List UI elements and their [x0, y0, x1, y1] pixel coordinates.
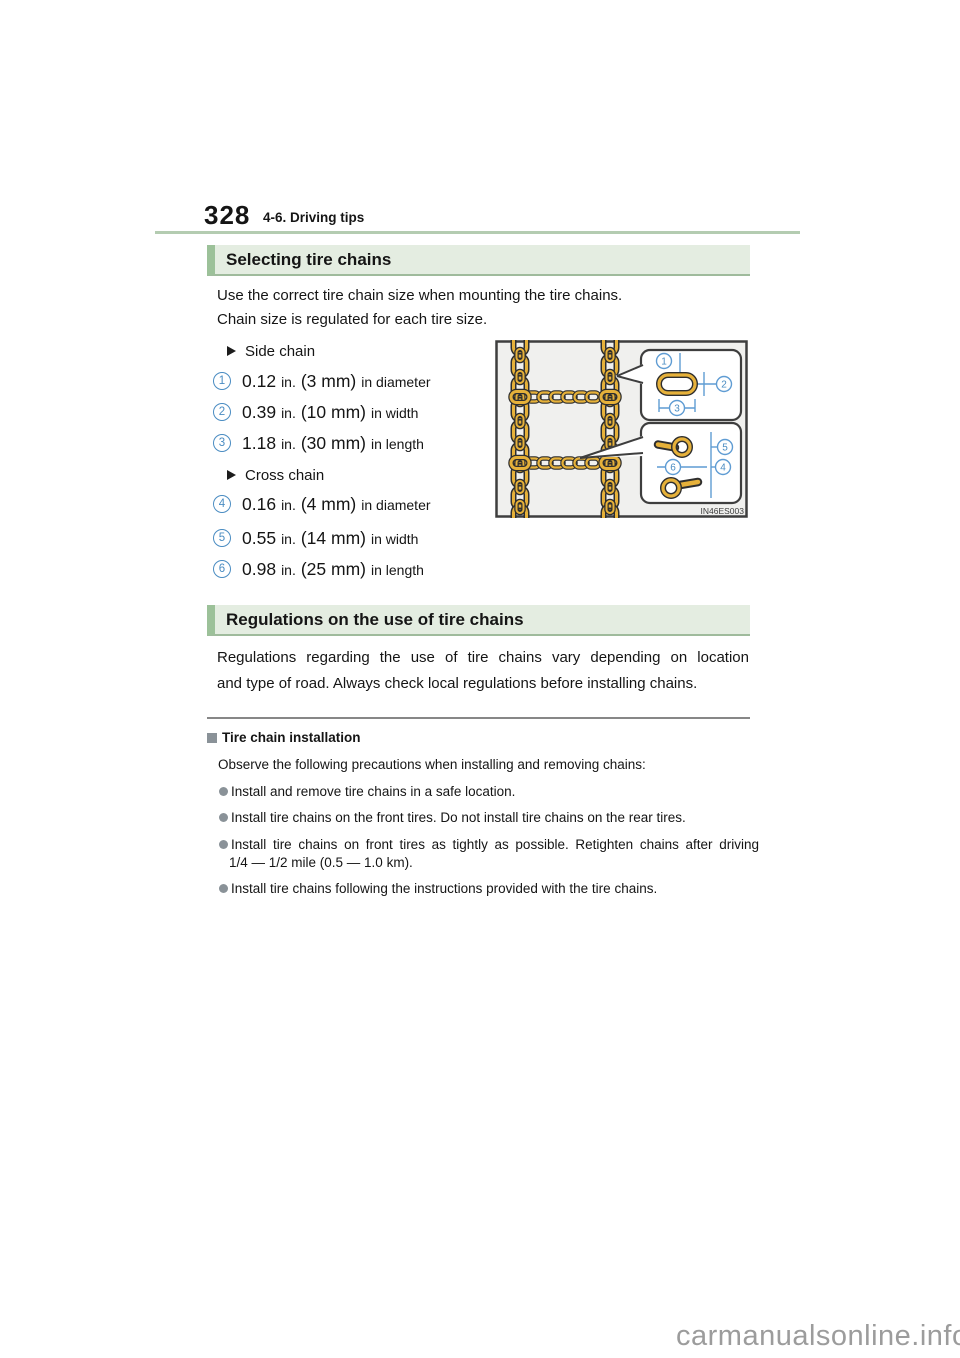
- intro-line: Use the correct tire chain size when mou…: [217, 284, 622, 308]
- spec-value: 0.98: [242, 559, 276, 580]
- note-title-text: Tire chain installation: [222, 730, 361, 745]
- spec-value: 0.39: [242, 402, 276, 423]
- callout-number-badge: 5: [213, 529, 231, 547]
- chain-spec-text: 0.55in.(14 mm)in width: [242, 528, 423, 549]
- circle-bullet-icon: [219, 813, 228, 822]
- note-bullet-1: Install and remove tire chains in a safe…: [219, 783, 515, 801]
- note-bullet-4: Install tire chains following the instru…: [219, 880, 657, 898]
- callout-number-badge: 1: [213, 372, 231, 390]
- arrow-right-icon: [227, 470, 236, 480]
- chain-spec-text: 0.16in.(4 mm)in diameter: [242, 494, 436, 515]
- spec-value: 0.12: [242, 371, 276, 392]
- callout-number-badge: 2: [213, 403, 231, 421]
- group-label-text: Cross chain: [245, 467, 324, 484]
- note-bullet-text: Install tire chains following the instru…: [231, 880, 657, 898]
- spec-suffix: in length: [371, 436, 424, 452]
- regulations-paragraph: Regulations regarding the use of tire ch…: [217, 645, 749, 696]
- note-bullet-text: Install and remove tire chains in a safe…: [231, 783, 515, 801]
- chain-spec-item-4: 4 0.16in.(4 mm)in diameter: [213, 493, 436, 515]
- spec-unit: in.: [281, 531, 296, 547]
- note-intro: Observe the following precautions when i…: [218, 757, 646, 772]
- chain-spec-text: 1.18in.(30 mm)in length: [242, 433, 429, 454]
- chain-spec-item-6: 6 0.98in.(25 mm)in length: [213, 558, 429, 580]
- figure-callout-4: 4: [720, 463, 726, 474]
- section-heading-text: Selecting tire chains: [226, 250, 391, 270]
- spec-metric: (3 mm): [301, 371, 356, 392]
- chain-spec-text: 0.98in.(25 mm)in length: [242, 559, 429, 580]
- spec-suffix: in diameter: [361, 374, 430, 390]
- spec-suffix: in width: [371, 405, 418, 421]
- spec-metric: (30 mm): [301, 433, 366, 454]
- chain-spec-item-5: 5 0.55in.(14 mm)in width: [213, 527, 423, 549]
- figure-callout-1: 1: [661, 357, 667, 368]
- note-bullet-line: 1/4 — 1/2 mile (0.5 — 1.0 km).: [229, 854, 759, 872]
- chapter-section-label: 4-6. Driving tips: [263, 210, 364, 225]
- spec-value: 0.16: [242, 494, 276, 515]
- note-bullet-text: Install tire chains on the front tires. …: [231, 809, 686, 827]
- figure-callout-5: 5: [722, 443, 728, 454]
- spec-metric: (14 mm): [301, 528, 366, 549]
- circle-bullet-icon: [219, 884, 228, 893]
- section-heading-selecting-tire-chains: Selecting tire chains: [207, 245, 750, 276]
- note-bullet-text: Install tire chains on front tires as ti…: [231, 836, 759, 871]
- watermark: carmanualsonline.info: [676, 1320, 946, 1353]
- group-label-cross-chain: Cross chain: [227, 464, 324, 486]
- selecting-intro-paragraph: Use the correct tire chain size when mou…: [217, 284, 622, 332]
- callout-number-badge: 3: [213, 434, 231, 452]
- spec-suffix: in length: [371, 562, 424, 578]
- spec-metric: (4 mm): [301, 494, 356, 515]
- header-rule: [155, 231, 800, 234]
- spec-value: 0.55: [242, 528, 276, 549]
- manual-page: 328 4-6. Driving tips Selecting tire cha…: [0, 0, 960, 1358]
- group-label-text: Side chain: [245, 343, 315, 360]
- figure-code: IN46ES003: [701, 506, 745, 516]
- spec-unit: in.: [281, 374, 296, 390]
- arrow-right-icon: [227, 346, 236, 356]
- group-label-side-chain: Side chain: [227, 340, 315, 362]
- square-bullet-icon: [207, 733, 217, 743]
- intro-line: Chain size is regulated for each tire si…: [217, 308, 622, 332]
- spec-metric: (25 mm): [301, 559, 366, 580]
- footnote-divider: [207, 717, 750, 719]
- regulations-line: Regulations regarding the use of tire ch…: [217, 645, 749, 671]
- spec-suffix: in diameter: [361, 497, 430, 513]
- note-bullet-3: Install tire chains on front tires as ti…: [219, 836, 759, 871]
- section-heading-text: Regulations on the use of tire chains: [226, 610, 524, 630]
- figure-callout-3: 3: [674, 404, 680, 415]
- note-bullet-line: Install tire chains on front tires as ti…: [231, 836, 759, 854]
- chain-spec-item-3: 3 1.18in.(30 mm)in length: [213, 432, 429, 454]
- spec-unit: in.: [281, 436, 296, 452]
- chain-spec-text: 0.12in.(3 mm)in diameter: [242, 371, 436, 392]
- tire-chain-figure: 1 2 3: [495, 340, 748, 518]
- note-bullet-2: Install tire chains on the front tires. …: [219, 809, 686, 827]
- circle-bullet-icon: [219, 787, 228, 796]
- figure-callout-6: 6: [670, 463, 676, 474]
- spec-unit: in.: [281, 497, 296, 513]
- spec-metric: (10 mm): [301, 402, 366, 423]
- figure-callout-2: 2: [721, 380, 727, 391]
- callout-number-badge: 4: [213, 495, 231, 513]
- page-number: 328: [204, 200, 250, 231]
- spec-unit: in.: [281, 405, 296, 421]
- chain-spec-item-1: 1 0.12in.(3 mm)in diameter: [213, 370, 436, 392]
- spec-value: 1.18: [242, 433, 276, 454]
- spec-unit: in.: [281, 562, 296, 578]
- regulations-line: and type of road. Always check local reg…: [217, 671, 749, 697]
- circle-bullet-icon: [219, 840, 228, 849]
- section-heading-regulations: Regulations on the use of tire chains: [207, 605, 750, 636]
- note-title-tire-chain-installation: Tire chain installation: [207, 730, 361, 745]
- callout-number-badge: 6: [213, 560, 231, 578]
- chain-spec-item-2: 2 0.39in.(10 mm)in width: [213, 401, 423, 423]
- chain-spec-text: 0.39in.(10 mm)in width: [242, 402, 423, 423]
- spec-suffix: in width: [371, 531, 418, 547]
